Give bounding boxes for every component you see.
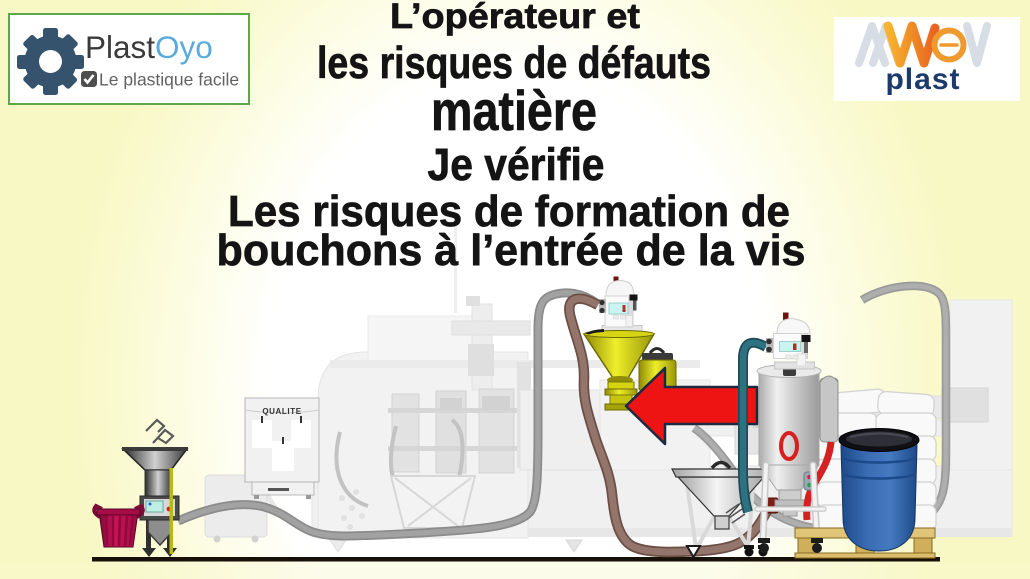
svg-text:matière: matière (431, 79, 597, 142)
svg-text:Je vérifie: Je vérifie (428, 139, 605, 190)
svg-text:bouchons à l’entrée de la vis: bouchons à l’entrée de la vis (217, 227, 806, 275)
svg-text:QUALITE: QUALITE (262, 407, 301, 416)
svg-text:L’opérateur et: L’opérateur et (390, 0, 640, 36)
